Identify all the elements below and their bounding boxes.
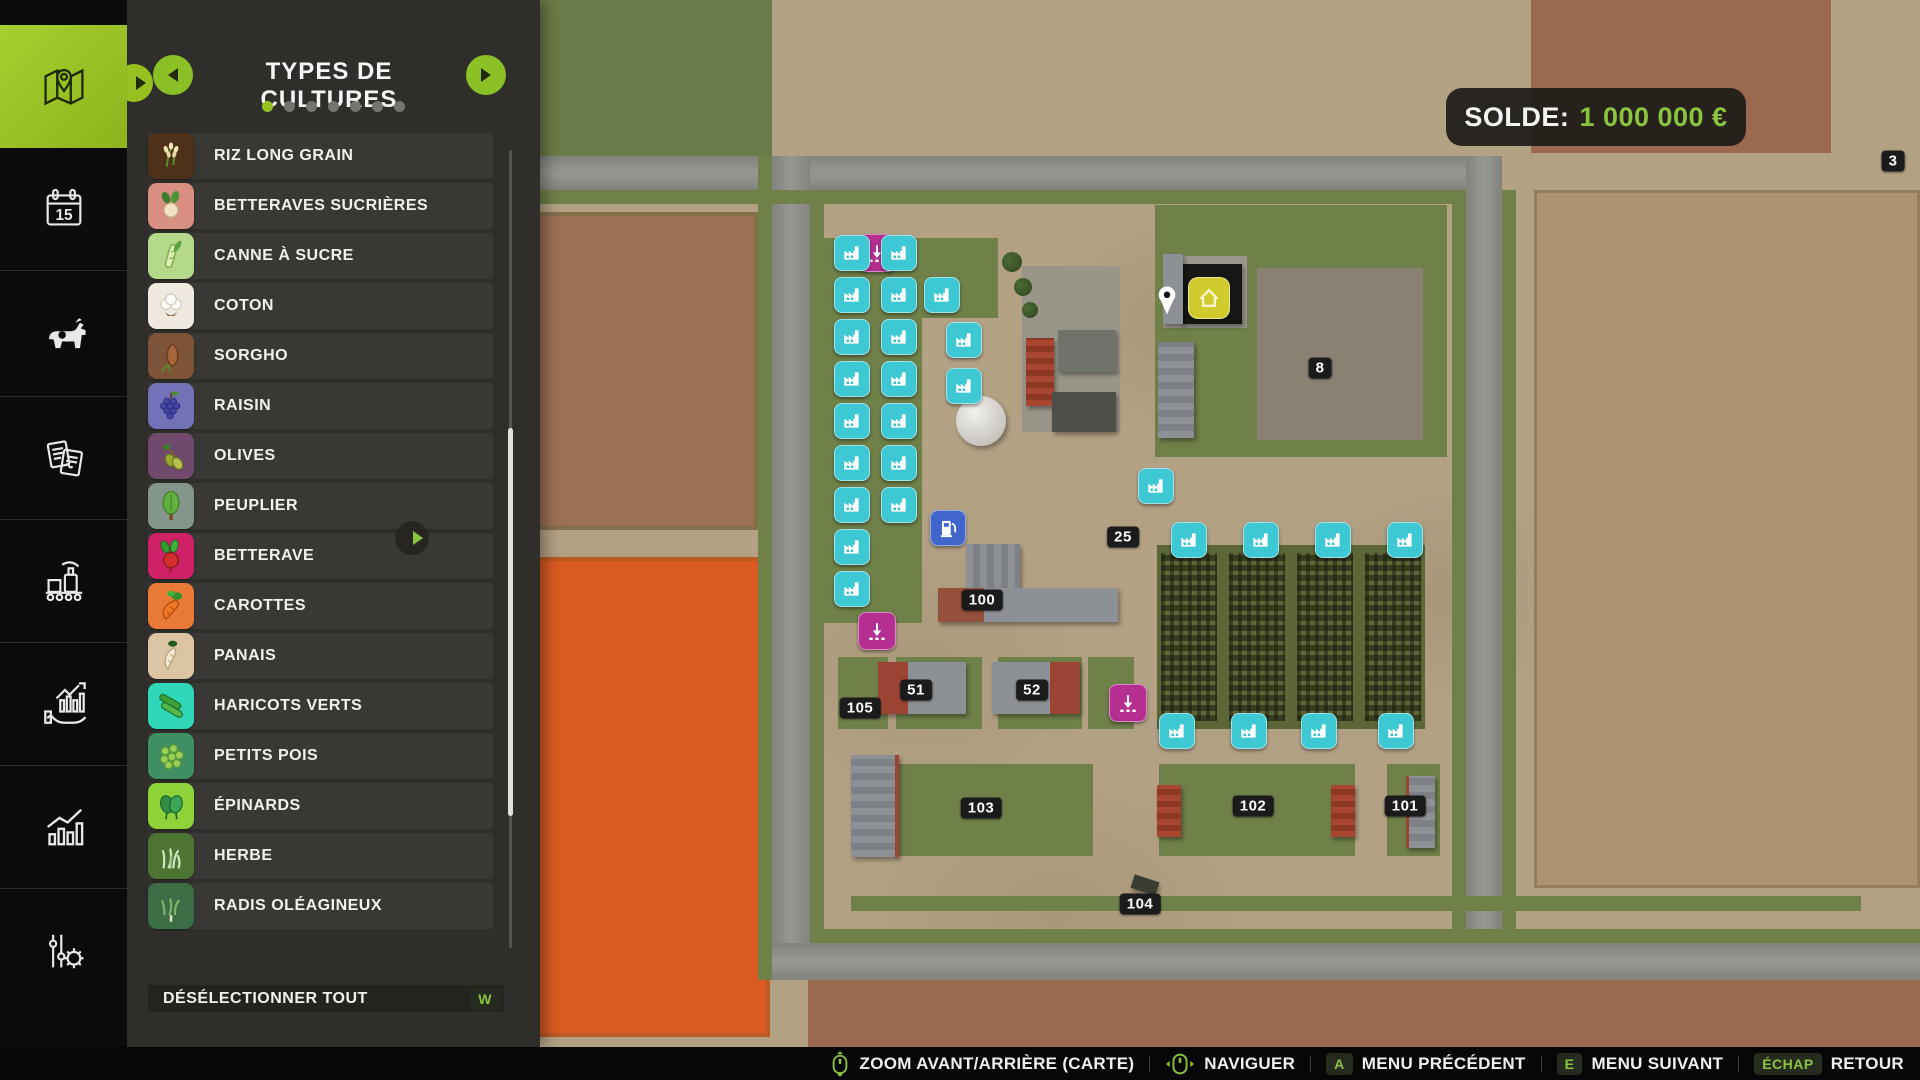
- hint-back: ÉCHAP RETOUR: [1754, 1053, 1904, 1075]
- crop-row-radis-oleagineux[interactable]: RADIS OLÉAGINEUX: [148, 883, 493, 929]
- crop-list-scrollbar-thumb[interactable]: [508, 428, 513, 816]
- hint-separator: [1738, 1056, 1739, 1072]
- grape-crop-icon: [148, 383, 194, 429]
- hint-zoom-map: ZOOM AVANT/ARRIÈRE (CARTE): [829, 1049, 1135, 1079]
- crop-types-panel: TYPES DE CULTURES RIZ LONG GRAIN BETTERA…: [127, 0, 540, 1047]
- building-dark-shed: [1052, 392, 1116, 432]
- page-dot: [350, 101, 361, 112]
- vine-row: [1297, 553, 1353, 721]
- sidebar-item-production[interactable]: [0, 521, 127, 641]
- field-number-badge: 3: [1882, 151, 1905, 172]
- crop-label: RIZ LONG GRAIN: [214, 133, 353, 179]
- cotton-crop-icon: [148, 283, 194, 329]
- field-number-badge: 25: [1107, 527, 1139, 548]
- shed-102-right: [1331, 785, 1355, 837]
- crop-row-betteraves-sucrieres[interactable]: BETTERAVES SUCRIÈRES: [148, 183, 493, 229]
- shed-102-left: [1157, 785, 1181, 837]
- parsnip-crop-icon: [148, 633, 194, 679]
- crop-label: SORGHO: [214, 333, 288, 379]
- factory-marker[interactable]: [881, 235, 917, 271]
- field-number-badge: 52: [1016, 680, 1048, 701]
- crop-row-petits-pois[interactable]: PETITS POIS: [148, 733, 493, 779]
- crop-label: CANNE À SUCRE: [214, 233, 354, 279]
- beetroot-crop-icon: [148, 533, 194, 579]
- crop-row-coton[interactable]: COTON: [148, 283, 493, 329]
- crop-row-raisin[interactable]: RAISIN: [148, 383, 493, 429]
- olive-crop-icon: [148, 433, 194, 479]
- balance-label: SOLDE:: [1464, 102, 1569, 133]
- field-plot-right-large[interactable]: [1534, 190, 1920, 888]
- hint-label: RETOUR: [1831, 1054, 1904, 1074]
- page-dot-active: [262, 101, 273, 112]
- field-number-badge: 100: [962, 590, 1003, 611]
- page-dot: [306, 101, 317, 112]
- field-number-badge: 103: [961, 798, 1002, 819]
- production-icon: [35, 552, 93, 610]
- hint-label: MENU SUIVANT: [1591, 1054, 1723, 1074]
- deselect-all-label: DÉSÉLECTIONNER TOUT: [163, 990, 470, 1008]
- peas-crop-icon: [148, 733, 194, 779]
- factory-marker[interactable]: [1243, 522, 1279, 558]
- road-horizontal-bottom: [772, 943, 1920, 980]
- keycap-a: A: [1326, 1053, 1353, 1075]
- field-number-badge: 102: [1233, 796, 1274, 817]
- vineyard-plot: [1157, 545, 1425, 729]
- unload-point-marker[interactable]: [858, 612, 896, 650]
- factory-marker[interactable]: [1378, 713, 1414, 749]
- statistics-icon: [35, 798, 93, 856]
- sidebar-item-contracts[interactable]: [0, 398, 127, 518]
- oilseed-radish-crop-icon: [148, 883, 194, 929]
- map-cursor-pin: [1154, 284, 1180, 316]
- factory-marker[interactable]: [881, 277, 917, 313]
- factory-marker[interactable]: [881, 445, 917, 481]
- sorghum-crop-icon: [148, 333, 194, 379]
- factory-marker[interactable]: [946, 368, 982, 404]
- factory-marker[interactable]: [834, 529, 870, 565]
- crop-row-betterave[interactable]: BETTERAVE: [148, 533, 493, 579]
- mouse-pan-icon: [1165, 1050, 1195, 1078]
- building-shed: [1058, 330, 1116, 372]
- factory-marker[interactable]: [834, 487, 870, 523]
- grass-verge: [1502, 190, 1516, 943]
- hint-navigate: NAVIGUER: [1165, 1050, 1295, 1078]
- grass-verge: [758, 156, 772, 980]
- keycap-echap: ÉCHAP: [1754, 1053, 1822, 1075]
- poplar-crop-icon: [148, 483, 194, 529]
- map-icon: [33, 56, 95, 118]
- road-vertical-right: [1466, 156, 1502, 980]
- sidebar-item-calendar[interactable]: 15: [0, 150, 127, 268]
- tree: [1002, 252, 1022, 272]
- grass-crop-icon: [148, 833, 194, 879]
- hint-label: MENU PRÉCÉDENT: [1362, 1054, 1526, 1074]
- main-menu-sidebar: 15: [0, 0, 127, 1080]
- crop-label: HARICOTS VERTS: [214, 683, 362, 729]
- crop-label: OLIVES: [214, 433, 276, 479]
- farmhouse-marker[interactable]: [1188, 277, 1230, 319]
- field-number-badge: 101: [1385, 796, 1426, 817]
- sidebar-item-map[interactable]: [0, 25, 127, 148]
- factory-marker[interactable]: [924, 277, 960, 313]
- panel-collapse-tab[interactable]: [395, 521, 429, 555]
- crop-row-peuplier[interactable]: PEUPLIER: [148, 483, 493, 529]
- crop-row-epinards[interactable]: ÉPINARDS: [148, 783, 493, 829]
- vine-row: [1161, 553, 1217, 721]
- factory-marker[interactable]: [881, 403, 917, 439]
- next-page-button[interactable]: [466, 55, 506, 95]
- factory-marker[interactable]: [1138, 468, 1174, 504]
- crop-row-olives[interactable]: OLIVES: [148, 433, 493, 479]
- vine-row: [1229, 553, 1285, 721]
- factory-marker[interactable]: [834, 235, 870, 271]
- sugar-beet-crop-icon: [148, 183, 194, 229]
- tree: [1022, 302, 1038, 318]
- crop-row-carottes[interactable]: CAROTTES: [148, 583, 493, 629]
- crop-row-haricots-verts[interactable]: HARICOTS VERTS: [148, 683, 493, 729]
- factory-marker[interactable]: [834, 571, 870, 607]
- sidebar-item-settings[interactable]: [0, 890, 127, 1012]
- fuel-station-marker[interactable]: [930, 510, 966, 546]
- vine-row: [1365, 553, 1421, 721]
- silo-building: [966, 544, 1020, 590]
- road-vertical-left: [772, 156, 810, 980]
- factory-marker[interactable]: [881, 361, 917, 397]
- hint-separator: [1541, 1056, 1542, 1072]
- page-dot: [328, 101, 339, 112]
- game-screen: 3 8 25 100 51 52 105 103 102 101 104 SOL…: [0, 0, 1920, 1080]
- factory-marker[interactable]: [1301, 713, 1337, 749]
- documents-icon: [35, 429, 93, 487]
- input-hints-bar: ZOOM AVANT/ARRIÈRE (CARTE) NAVIGUER A ME…: [0, 1047, 1920, 1080]
- unload-point-marker[interactable]: [1109, 684, 1147, 722]
- crop-row-sorgho[interactable]: SORGHO: [148, 333, 493, 379]
- factory-marker[interactable]: [834, 403, 870, 439]
- page-dot: [394, 101, 405, 112]
- hint-label: ZOOM AVANT/ARRIÈRE (CARTE): [860, 1054, 1135, 1074]
- crop-label: RADIS OLÉAGINEUX: [214, 883, 382, 929]
- tree: [1014, 278, 1032, 296]
- sugarcane-crop-icon: [148, 233, 194, 279]
- building-red-barn: [1026, 338, 1054, 406]
- field-number-badge: 8: [1309, 358, 1332, 379]
- warehouse-long: [1158, 342, 1194, 438]
- spinach-crop-icon: [148, 783, 194, 829]
- factory-marker[interactable]: [834, 361, 870, 397]
- balance-display: SOLDE: 1 000 000 €: [1446, 88, 1746, 146]
- crop-label: PEUPLIER: [214, 483, 298, 529]
- factory-marker[interactable]: [834, 319, 870, 355]
- deselect-all-row[interactable]: DÉSÉLECTIONNER TOUT W: [148, 985, 504, 1012]
- grass-verge: [824, 929, 1920, 943]
- factory-marker[interactable]: [1387, 522, 1423, 558]
- hint-menu-previous: A MENU PRÉCÉDENT: [1326, 1053, 1525, 1075]
- crop-row-panais[interactable]: PANAIS: [148, 633, 493, 679]
- shed-103: [851, 755, 899, 857]
- field-number-badge: 105: [840, 698, 881, 719]
- field-number-badge: 104: [1120, 894, 1161, 915]
- calendar-icon: 15: [35, 180, 93, 238]
- page-dots: [127, 101, 540, 112]
- crop-label: CAROTTES: [214, 583, 306, 629]
- carrot-crop-icon: [148, 583, 194, 629]
- page-dot: [372, 101, 383, 112]
- page-dot: [284, 101, 295, 112]
- hint-separator: [1149, 1056, 1150, 1072]
- crop-row-herbe[interactable]: HERBE: [148, 833, 493, 879]
- prev-page-button[interactable]: [153, 55, 193, 95]
- crop-label: BETTERAVES SUCRIÈRES: [214, 183, 428, 229]
- grass-strip-104: [851, 896, 1861, 911]
- hint-label: NAVIGUER: [1204, 1054, 1295, 1074]
- crop-label: PETITS POIS: [214, 733, 318, 779]
- sidebar-item-statistics[interactable]: [0, 767, 127, 887]
- factory-marker[interactable]: [834, 277, 870, 313]
- mouse-scroll-icon: [829, 1049, 851, 1079]
- rice-crop-icon: [148, 133, 194, 179]
- crop-label: RAISIN: [214, 383, 271, 429]
- crop-label: BETTERAVE: [214, 533, 314, 579]
- road-horizontal-top: [440, 156, 1502, 190]
- grass-verge: [1452, 190, 1466, 943]
- factory-marker[interactable]: [1171, 522, 1207, 558]
- factory-marker[interactable]: [834, 445, 870, 481]
- crop-label: PANAIS: [214, 633, 276, 679]
- cow-icon: [34, 304, 94, 364]
- sliders-gear-icon: [35, 922, 93, 980]
- green-beans-crop-icon: [148, 683, 194, 729]
- factory-marker[interactable]: [1315, 522, 1351, 558]
- factory-marker[interactable]: [946, 322, 982, 358]
- sidebar-item-finances[interactable]: [0, 644, 127, 764]
- svg-text:15: 15: [55, 207, 73, 224]
- keycap-w: W: [470, 988, 500, 1010]
- crop-label: COTON: [214, 283, 274, 329]
- field-plot-8[interactable]: [1257, 268, 1423, 440]
- crop-row-riz-long-grain[interactable]: RIZ LONG GRAIN: [148, 133, 493, 179]
- grass-verge: [440, 190, 1466, 204]
- hint-separator: [1310, 1056, 1311, 1072]
- sidebar-item-animals[interactable]: [0, 272, 127, 395]
- field-number-badge: 51: [900, 680, 932, 701]
- keycap-e: E: [1557, 1053, 1583, 1075]
- crop-label: HERBE: [214, 833, 273, 879]
- crop-label: ÉPINARDS: [214, 783, 301, 829]
- factory-marker[interactable]: [1159, 713, 1195, 749]
- factory-marker[interactable]: [881, 487, 917, 523]
- factory-marker[interactable]: [1231, 713, 1267, 749]
- crop-row-canne-a-sucre[interactable]: CANNE À SUCRE: [148, 233, 493, 279]
- factory-marker[interactable]: [881, 319, 917, 355]
- finances-icon: [34, 674, 94, 734]
- balance-value: 1 000 000 €: [1579, 102, 1727, 133]
- hint-menu-next: E MENU SUIVANT: [1557, 1053, 1724, 1075]
